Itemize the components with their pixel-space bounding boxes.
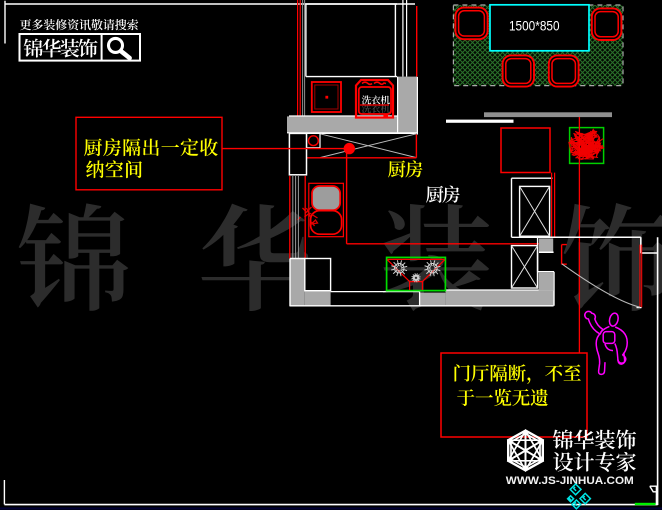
- svg-text:1500*850: 1500*850: [509, 18, 560, 34]
- svg-text:WWW.JS-JINHUA.COM: WWW.JS-JINHUA.COM: [506, 475, 634, 487]
